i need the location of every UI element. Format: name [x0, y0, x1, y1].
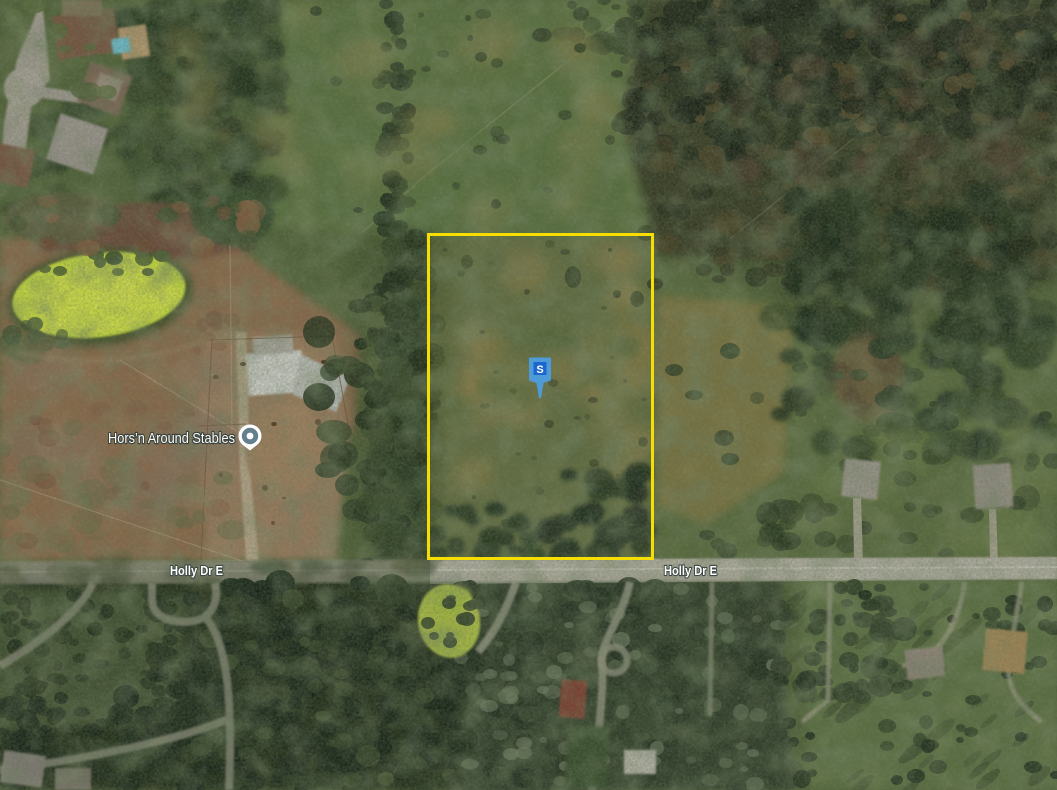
- svg-text:S: S: [536, 364, 543, 376]
- svg-text:Holly Dr E: Holly Dr E: [170, 564, 223, 578]
- svg-text:Holly Dr E: Holly Dr E: [664, 564, 717, 578]
- svg-text:Hors’n Around Stables: Hors’n Around Stables: [108, 430, 235, 447]
